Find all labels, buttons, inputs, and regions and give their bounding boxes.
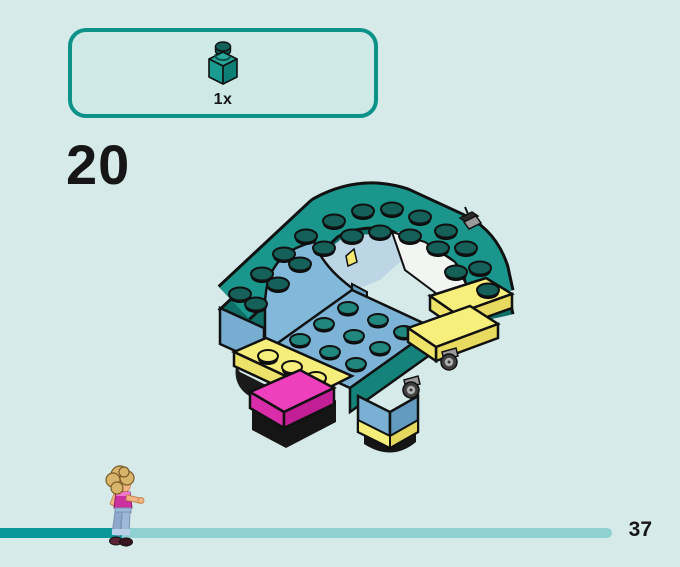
teal-1x1-brick-icon: [201, 38, 245, 90]
instruction-page: 1x 20: [0, 0, 680, 567]
mini-doll-mascot: [96, 462, 152, 558]
mascot-body: [106, 466, 144, 546]
page-number: 37: [629, 518, 652, 542]
parts-callout-box: 1x: [68, 28, 378, 118]
magenta-step: [250, 370, 336, 448]
step-number: 20: [66, 137, 130, 193]
front-base-column: [358, 396, 418, 453]
caster-wheel: [441, 348, 458, 370]
part-count-label: 1x: [214, 91, 233, 109]
mascot-hair: [106, 466, 134, 494]
progress-line-remaining: [122, 528, 612, 538]
lego-model-illustration: [200, 175, 520, 465]
caster-wheel: [403, 376, 420, 398]
